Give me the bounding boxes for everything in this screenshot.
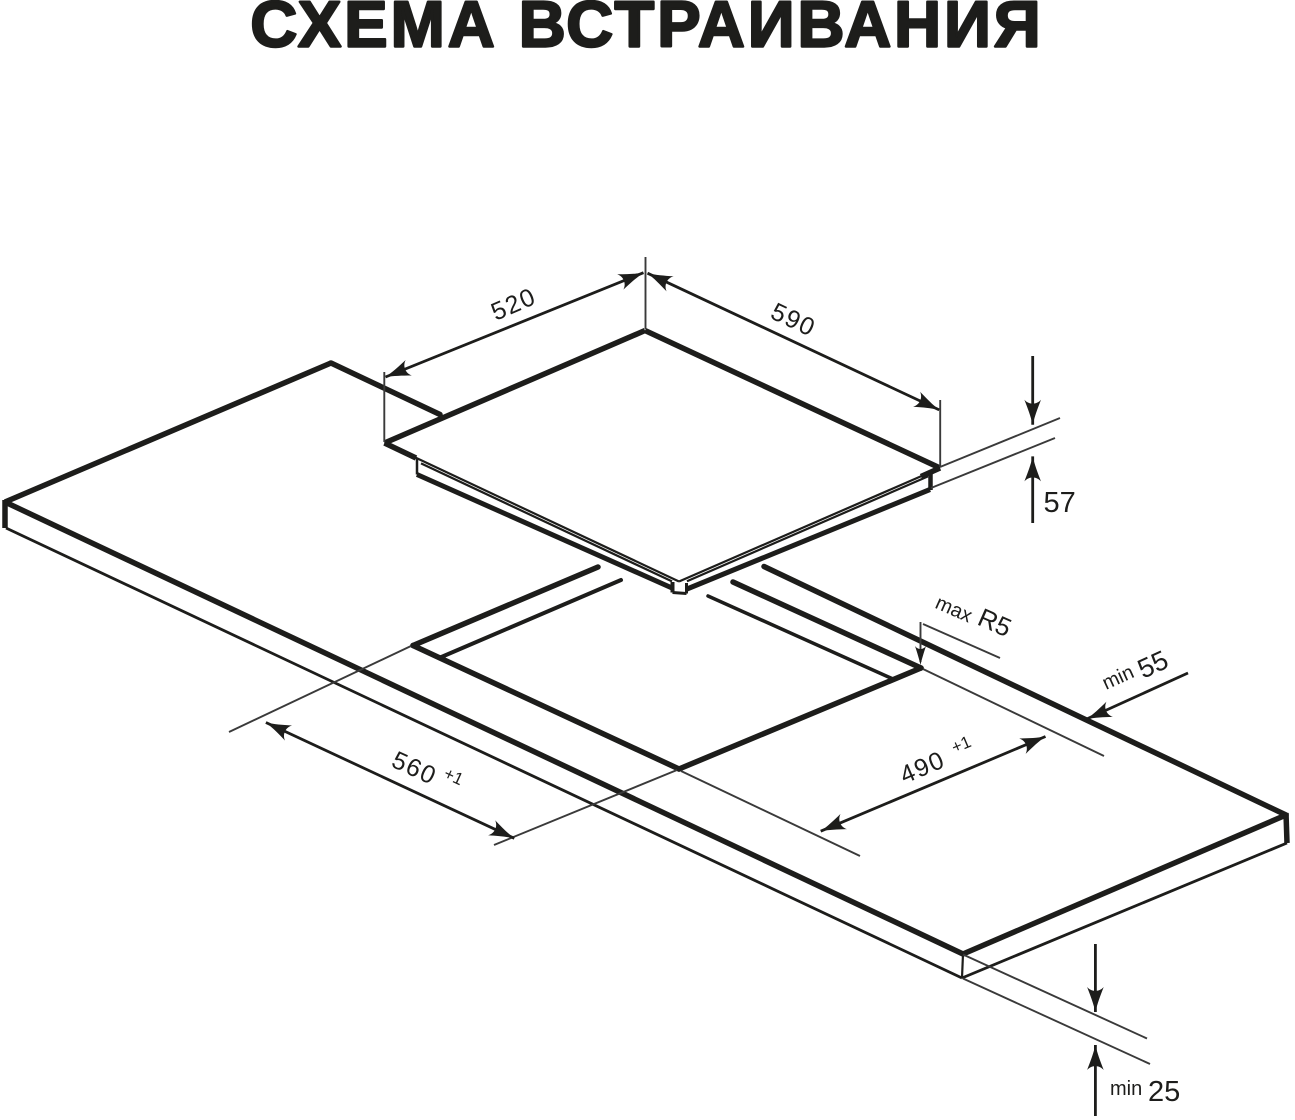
svg-text:25: 25 xyxy=(1148,1076,1180,1108)
svg-text:57: 57 xyxy=(1044,487,1076,519)
svg-text:СХЕМА ВСТРАИВАНИЯ: СХЕМА ВСТРАИВАНИЯ xyxy=(250,0,1043,61)
svg-text:min: min xyxy=(1110,1078,1142,1100)
